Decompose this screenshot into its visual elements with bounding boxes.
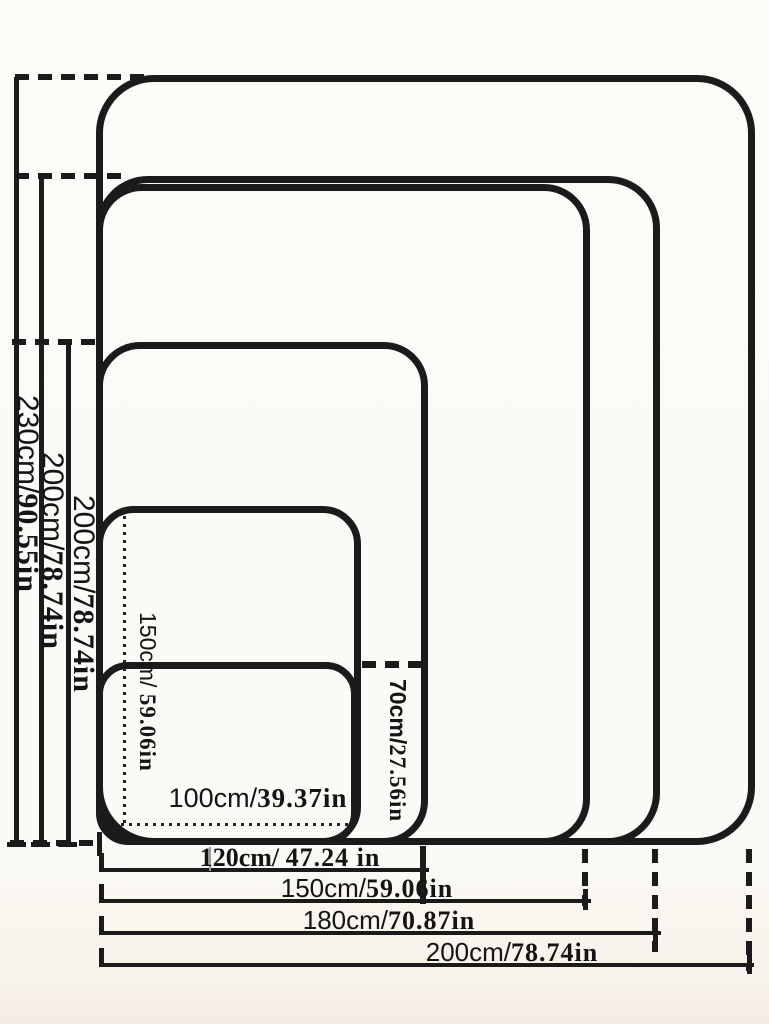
row-tick: [99, 916, 104, 932]
width-label-180-cm: 180cm/: [303, 905, 388, 935]
width-label-100-in: 39.37in: [257, 783, 347, 813]
dashed-connector-top-200a: [15, 173, 127, 179]
dotted-width-100: [121, 823, 354, 826]
height-label-70: 70cm/27.56in: [384, 679, 410, 822]
row-tick: [653, 921, 658, 942]
width-label-120: 120cm/ 47.24 in: [180, 843, 400, 872]
width-label-200-cm: 200cm/: [426, 937, 511, 967]
height-label-200b-in: 78.74in: [67, 593, 100, 693]
width-label-120-in: 47.24 in: [286, 843, 381, 872]
height-label-200a-in: 78.74in: [36, 550, 69, 650]
width-label-100-cm: 100cm/: [169, 783, 258, 813]
row-tick: [99, 884, 104, 900]
row-tick: [99, 948, 104, 964]
width-label-200: 200cm/78.74in: [402, 938, 622, 967]
height-label-200a: 200cm/78.74in: [36, 452, 68, 650]
width-label-150: 150cm/59.06in: [257, 874, 477, 903]
row-tick: [583, 889, 588, 910]
width-label-120-cm: 120cm/: [200, 843, 286, 872]
dashed-connector-70: [362, 661, 422, 668]
height-label-70-cm: 70cm/: [385, 679, 411, 744]
height-label-200b: 200cm/78.74in: [67, 495, 99, 693]
height-label-150: 150cm/ 59.06in: [134, 612, 160, 772]
dashed-connector-top-230: [15, 74, 153, 80]
size-chart-diagram: 230cm/90.55in 200cm/78.74in 200cm/78.74i…: [0, 0, 769, 1024]
width-label-200-in: 78.74in: [511, 938, 598, 967]
height-label-200b-cm: 200cm/: [67, 495, 100, 593]
dashed-connector-top-200b: [12, 339, 98, 345]
dotted-height-150: [123, 508, 126, 826]
height-label-200a-cm: 200cm/: [36, 452, 69, 550]
height-label-150-cm: 150cm/: [135, 612, 161, 694]
width-label-100: 100cm/39.37in: [148, 784, 368, 813]
width-label-180-in: 70.87in: [388, 906, 475, 935]
dashed-connector-bottom-left: [10, 840, 98, 846]
row-tick: [99, 853, 104, 869]
row-tick: [747, 953, 752, 974]
width-label-150-cm: 150cm/: [281, 873, 366, 903]
width-label-180: 180cm/70.87in: [279, 906, 499, 935]
height-label-70-in: 27.56in: [385, 744, 410, 822]
width-label-150-in: 59.06in: [366, 874, 453, 903]
height-label-150-in: 59.06in: [135, 694, 160, 772]
